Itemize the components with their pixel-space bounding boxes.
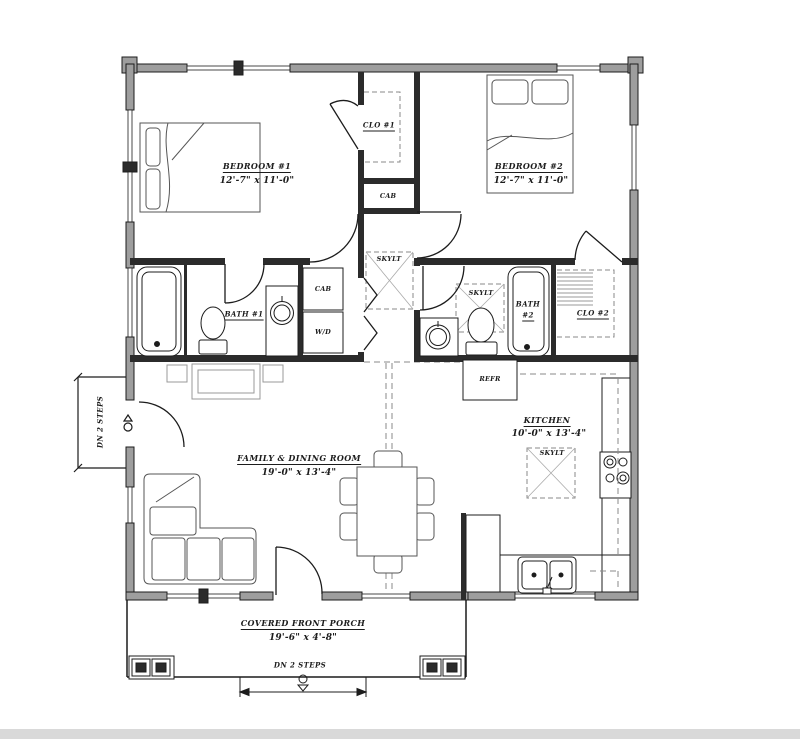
closet1-label: CLO #1 bbox=[363, 121, 395, 132]
porch bbox=[127, 600, 466, 697]
bath1-door bbox=[225, 264, 264, 303]
bath1-label: BATH #1 bbox=[225, 310, 264, 321]
side-entry-steps-label: DN 2 STEPS bbox=[96, 396, 105, 448]
kitchen-dims: 10'-0" x 13'-4" bbox=[512, 429, 587, 439]
vanity-sink-2 bbox=[420, 318, 458, 356]
skylight-kitchen-label: SKYLT bbox=[540, 449, 565, 457]
refrigerator-label: REFR bbox=[479, 375, 500, 383]
porch-columns-left bbox=[129, 656, 174, 679]
toilet-1 bbox=[199, 307, 227, 354]
side-entry-door bbox=[139, 402, 184, 447]
bedroom1-label: BEDROOM #1 bbox=[223, 161, 291, 173]
porch-steps bbox=[240, 675, 366, 697]
bath2-door bbox=[420, 266, 464, 310]
bath2-label-line1: BATH bbox=[516, 300, 540, 309]
washer-dryer-label: W/D bbox=[315, 328, 331, 336]
closet2-label: CLO #2 bbox=[577, 309, 609, 320]
dining-table bbox=[357, 467, 417, 556]
bedroom2-label: BEDROOM #2 bbox=[495, 161, 563, 173]
footer-bar bbox=[0, 729, 800, 739]
bedroom2-dims: 12'-7" x 11'-0" bbox=[494, 176, 569, 186]
dining-chair bbox=[415, 513, 434, 540]
dining-set bbox=[340, 451, 434, 573]
kitchen-label: KITCHEN bbox=[524, 415, 571, 427]
porch-label: COVERED FRONT PORCH bbox=[241, 618, 365, 630]
stove bbox=[600, 452, 631, 498]
side-entry-marker bbox=[124, 415, 132, 431]
dining-chair bbox=[374, 554, 402, 573]
skylight-hall-label: SKYLT bbox=[377, 255, 402, 263]
dining-chair bbox=[340, 513, 359, 540]
closet1-door bbox=[330, 100, 358, 149]
vanity-sink-1 bbox=[266, 286, 298, 356]
family-dining-label: FAMILY & DINING ROOM bbox=[237, 453, 361, 465]
porch-steps-label: DN 2 STEPS bbox=[274, 661, 326, 670]
porch-dims: 19'-6" x 4'-8" bbox=[269, 633, 337, 643]
bedroom1-door bbox=[310, 214, 358, 262]
bathtub-1 bbox=[137, 267, 181, 356]
floor-plan: BEDROOM #1 12'-7" x 11'-0" BEDROOM #2 12… bbox=[0, 0, 800, 739]
bedroom1-dims: 12'-7" x 11'-0" bbox=[220, 176, 295, 186]
porch-columns-right bbox=[420, 656, 465, 679]
dining-chair bbox=[340, 478, 359, 505]
closet2-door bbox=[575, 231, 622, 262]
tv-console bbox=[167, 364, 283, 399]
closet2-shelving bbox=[557, 270, 614, 337]
hall-cabinet-label: CAB bbox=[380, 192, 396, 200]
family-dining-dims: 19'-0" x 13'-4" bbox=[262, 468, 337, 478]
bath-cabinet-label: CAB bbox=[315, 285, 331, 293]
bath2-label-line2: #2 bbox=[522, 311, 534, 322]
bedroom2-door bbox=[417, 212, 461, 258]
sectional-sofa bbox=[144, 474, 256, 584]
toilet-2 bbox=[466, 308, 497, 355]
dining-chair bbox=[415, 478, 434, 505]
bifold-door-wd bbox=[364, 316, 377, 350]
floor-plan-drawing bbox=[0, 0, 800, 739]
skylight-bath2-label: SKYLT bbox=[469, 289, 494, 297]
front-door bbox=[276, 547, 322, 595]
kitchen-sink bbox=[518, 557, 576, 594]
